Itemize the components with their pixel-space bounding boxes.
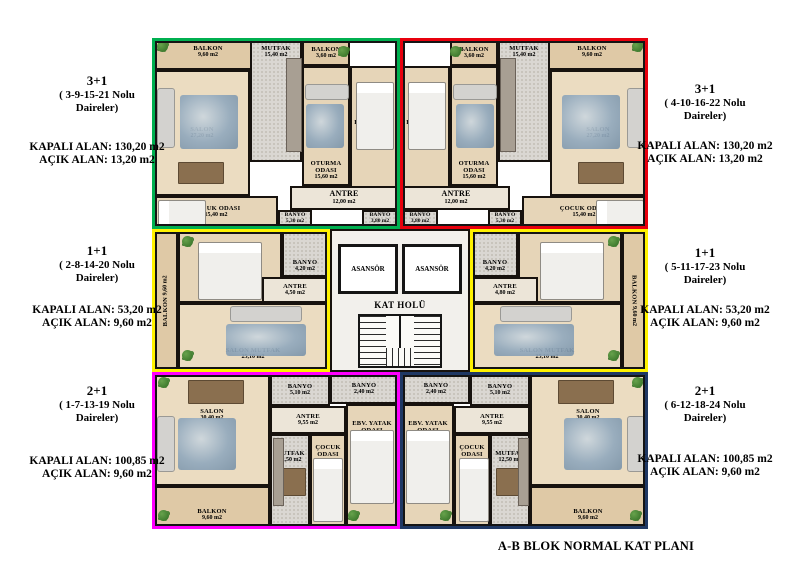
elevator-label: ASANSÖR: [415, 265, 448, 273]
apartment-units-line1: ( 6-12-18-24 Nolu: [630, 399, 780, 412]
rug: [306, 104, 344, 148]
room-balkon: BALKON 9,60 m2: [530, 486, 646, 527]
room-banyo: BANYO 2,40 m2: [330, 374, 398, 404]
plan-title: A-B BLOK NORMAL KAT PLANI: [476, 539, 716, 554]
elevator-shaft: ASANSÖR: [402, 244, 462, 294]
legend-right-2plus1: 2+1 ( 6-12-18-24 Nolu Daireler) KAPALI A…: [630, 384, 780, 480]
apartment-units-line1: ( 4-10-16-22 Nolu: [630, 97, 780, 110]
dining-table: [178, 162, 224, 184]
dining-table: [188, 380, 244, 404]
apartment-type-label: 2+1: [22, 384, 172, 399]
apartment-units-line2: Daireler): [630, 274, 780, 287]
dining-table: [578, 162, 624, 184]
room-banyo: BANYO 5,30 m2: [488, 210, 522, 227]
rug: [226, 324, 306, 356]
bed: [540, 242, 604, 300]
sofa: [230, 306, 302, 322]
open-area-label: AÇIK ALAN: 9,60 m2: [22, 468, 172, 481]
closed-area-label: KAPALI ALAN: 53,20 m2: [630, 304, 780, 317]
apartment-type-label: 2+1: [630, 384, 780, 399]
open-area-label: AÇIK ALAN: 9,60 m2: [22, 317, 172, 330]
closed-area-label: KAPALI ALAN: 100,85 m2: [22, 455, 172, 468]
open-area-label: AÇIK ALAN: 13,20 m2: [22, 154, 172, 167]
bed: [158, 200, 206, 226]
rug: [178, 418, 236, 470]
room-balkon: BALKON 9,60 m2: [154, 40, 262, 70]
apartment-type-label: 1+1: [22, 244, 172, 259]
apartment-units-line1: ( 1-7-13-19 Nolu: [22, 399, 172, 412]
stairs: [358, 314, 442, 368]
sofa: [453, 84, 497, 100]
apartment-units-line2: Daireler): [22, 102, 172, 115]
elevator-shaft: ASANSÖR: [338, 244, 398, 294]
apartment-units-line1: ( 3-9-15-21 Nolu: [22, 89, 172, 102]
open-area-label: AÇIK ALAN: 13,20 m2: [630, 153, 780, 166]
room-antre: ANTRE 12,00 m2: [290, 186, 398, 210]
plant: [157, 41, 168, 52]
rug: [456, 104, 494, 148]
room-antre: ANTRE 4,50 m2: [262, 277, 328, 303]
plant: [348, 510, 359, 521]
sofa: [500, 306, 572, 322]
stair-flight: [414, 316, 440, 366]
room-banyo: BANYO 5,10 m2: [470, 374, 530, 406]
stair-flight: [360, 316, 386, 366]
kitchen-counter: [500, 58, 516, 152]
plant: [158, 510, 169, 521]
plant: [440, 510, 451, 521]
elevator-label: ASANSÖR: [351, 265, 384, 273]
stair-landing: [386, 348, 414, 366]
legend-left-2plus1: 2+1 ( 1-7-13-19 Nolu Daireler) KAPALI AL…: [22, 384, 172, 482]
bed: [408, 82, 446, 150]
sofa: [305, 84, 349, 100]
dining-table: [558, 380, 614, 404]
room-banyo: BANYO 5,10 m2: [270, 374, 330, 406]
closed-area-label: KAPALI ALAN: 53,20 m2: [22, 304, 172, 317]
legend-left-1plus1: 1+1 ( 2-8-14-20 Nolu Daireler) KAPALI AL…: [22, 244, 172, 331]
room-antre: ANTRE 12,00 m2: [402, 186, 510, 210]
plant: [450, 46, 461, 57]
floor-plan-canvas: 3+1 ( 3-9-15-21 Nolu Daireler) KAPALI AL…: [0, 0, 800, 569]
apartment-type-label: 3+1: [22, 74, 172, 89]
kitchen-counter: [286, 58, 302, 152]
room-balkon: BALKON 9,60 m2: [154, 486, 270, 527]
bed: [198, 242, 262, 300]
bed: [406, 430, 450, 504]
apartment-units-line1: ( 2-8-14-20 Nolu: [22, 259, 172, 272]
plant: [608, 236, 619, 247]
kitchen-counter: [518, 438, 529, 506]
rug: [494, 324, 574, 356]
apartment-units-line2: Daireler): [22, 272, 172, 285]
rug: [564, 418, 622, 470]
room-balkon: BALKON 9,60 m2: [538, 40, 646, 70]
room-banyo: BANYO 4,20 m2: [282, 231, 328, 277]
room-banyo: BANYO 2,40 m2: [402, 374, 470, 404]
rug: [180, 95, 238, 149]
kitchen-counter: [273, 438, 284, 506]
room-banyo: BANYO 5,30 m2: [278, 210, 312, 227]
bed: [350, 430, 394, 504]
rug: [562, 95, 620, 149]
apartment-units-line2: Daireler): [630, 110, 780, 123]
bed: [356, 82, 394, 150]
bed: [459, 458, 489, 522]
room-antre: ANTRE 9,55 m2: [454, 406, 530, 434]
apartment-units-line1: ( 5-11-17-23 Nolu: [630, 261, 780, 274]
open-area-label: AÇIK ALAN: 9,60 m2: [630, 466, 780, 479]
closed-area-label: KAPALI ALAN: 130,20 m2: [22, 141, 172, 154]
plant: [182, 350, 193, 361]
room-banyo: BANYO 3,80 m2: [362, 210, 398, 227]
floor-hall-label: KAT HOLÜ: [350, 300, 450, 310]
apartment-units-line2: Daireler): [22, 412, 172, 425]
closed-area-label: KAPALI ALAN: 100,85 m2: [630, 453, 780, 466]
plant: [608, 350, 619, 361]
stair-divider: [399, 316, 401, 348]
closed-area-label: KAPALI ALAN: 130,20 m2: [630, 140, 780, 153]
plant: [632, 41, 643, 52]
room-banyo: BANYO 4,20 m2: [472, 231, 518, 277]
apartment-type-label: 1+1: [630, 246, 780, 261]
plant: [182, 236, 193, 247]
room-antre: ANTRE 4,80 m2: [472, 277, 538, 303]
apartment-units-line2: Daireler): [630, 412, 780, 425]
room-antre: ANTRE 9,55 m2: [270, 406, 346, 434]
room-banyo: BANYO 3,80 m2: [402, 210, 438, 227]
bed: [596, 200, 644, 226]
bed: [313, 458, 343, 522]
plant: [338, 46, 349, 57]
plant: [630, 510, 641, 521]
open-area-label: AÇIK ALAN: 9,60 m2: [630, 317, 780, 330]
legend-right-3plus1: 3+1 ( 4-10-16-22 Nolu Daireler) KAPALI A…: [630, 82, 780, 167]
legend-left-3plus1: 3+1 ( 3-9-15-21 Nolu Daireler) KAPALI AL…: [22, 74, 172, 168]
legend-right-1plus1: 1+1 ( 5-11-17-23 Nolu Daireler) KAPALI A…: [630, 246, 780, 331]
apartment-type-label: 3+1: [630, 82, 780, 97]
